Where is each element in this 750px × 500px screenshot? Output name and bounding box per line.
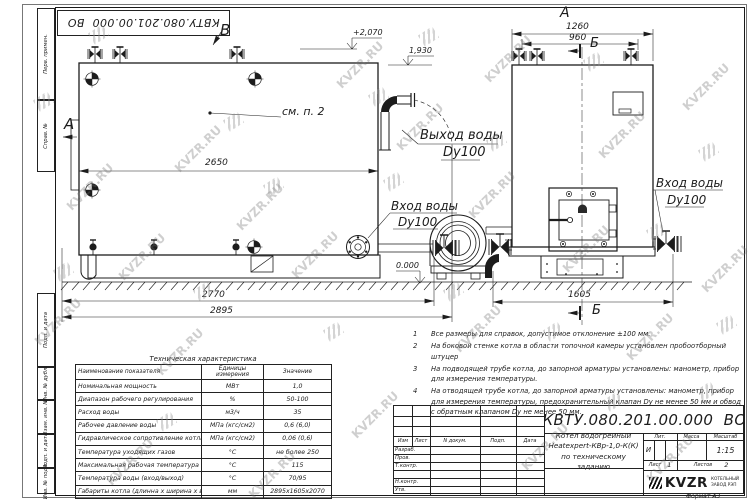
section-label-b-top: Б — [590, 37, 599, 50]
col-header: Наименование показателя — [76, 365, 202, 380]
table-row: Габариты котла (длинна х ширина х высота… — [76, 485, 332, 498]
boiler-front-view — [485, 47, 681, 325]
row-razrab: Разраб. — [395, 446, 430, 454]
dimension-1260: 1260 — [566, 23, 589, 32]
elevation-2070: +2,070 — [353, 29, 383, 37]
note-text: Все размеры для справок, допустимое откл… — [431, 329, 745, 340]
water-inlet-left-dy: Dy100 — [398, 216, 437, 228]
dimension-2650: 2650 — [205, 159, 228, 168]
row-blank — [395, 470, 430, 478]
see-note-label: см. п. 2 — [282, 106, 325, 117]
note-text: На боковой стенке котла в области топочн… — [431, 341, 745, 362]
furnace-door — [549, 188, 617, 251]
sheet-cell: Лист 1 — [643, 460, 677, 470]
mass-label: Масса — [677, 433, 706, 440]
col-izm: Изм — [394, 436, 412, 446]
boiler-side-view — [71, 47, 459, 279]
note-number: 3 — [413, 364, 431, 385]
water-inlet-right-dy: Dy100 — [667, 194, 706, 206]
dimension-2770: 2770 — [202, 291, 225, 300]
company-logo-icon — [649, 477, 662, 489]
row-utv: Утв. — [395, 486, 430, 494]
format-label: Формат А3 — [686, 494, 720, 500]
elevation-1930: 1,930 — [409, 47, 432, 55]
company-name: KVZR — [665, 475, 708, 491]
drawing-sheet: Перв. примен. Справ. № Подп. и дата Инв.… — [0, 0, 750, 500]
water-inlet-left-label: Вход воды — [391, 200, 458, 212]
table-row: Гидравлическое сопротивление котлаМПа (к… — [76, 432, 332, 445]
dimension-960: 960 — [569, 34, 586, 43]
elevation-0000: 0.000 — [396, 262, 419, 270]
col-dokum: N докум. — [430, 436, 480, 446]
col-header: Значение — [264, 365, 332, 380]
product-name: Котел водогрейный Heatexpert-КВр-1,0-К(К… — [544, 435, 643, 468]
view-label-b-top: B — [220, 23, 230, 38]
water-outlet-label: Выход воды — [420, 129, 503, 142]
row-prov: Пров. — [395, 454, 430, 462]
view-title-a: А — [560, 6, 570, 20]
company-cell: KVZR КОТЕЛЬНЫЙ ЗАВОД РЭП — [643, 470, 745, 495]
company-subtitle: КОТЕЛЬНЫЙ ЗАВОД РЭП — [711, 477, 739, 488]
tech-characteristics: Техническая характеристика Наименование … — [75, 355, 331, 499]
table-row: Диапазон рабочего регулирования%50-100 — [76, 393, 332, 406]
scale-value: 1:15 — [706, 440, 745, 460]
col-podp: Подп. — [480, 436, 516, 446]
table-row: Температура уходящих газов°Сне более 250 — [76, 445, 332, 458]
dimension-2895: 2895 — [210, 307, 233, 316]
ground-line — [61, 282, 692, 290]
title-block-number: КВТУ.080.201.00.000 ВО — [544, 406, 745, 433]
section-label-b-bottom: Б — [592, 304, 601, 317]
scale-label: Масштаб — [706, 433, 745, 440]
col-list: Лист — [412, 436, 430, 446]
tech-table: Наименование показателя Единицы измерени… — [75, 364, 332, 499]
water-inlet-right-label: Вход воды — [656, 177, 723, 189]
sheets-cell: Листов 2 — [677, 460, 745, 470]
tech-table-header-row: Наименование показателя Единицы измерени… — [76, 365, 332, 380]
row-tkontr: Т.контр. — [395, 462, 430, 470]
water-outlet-dy: Dy100 — [443, 146, 486, 159]
tech-table-title: Техническая характеристика — [75, 355, 331, 363]
lit-value: И — [643, 440, 654, 460]
lit-label: Лит. — [643, 433, 677, 440]
title-block: Изм Лист N докум. Подп. Дата Разраб. Про… — [393, 405, 744, 494]
table-row: Номинальная мощностьМВт1,0 — [76, 380, 332, 393]
note-number: 2 — [413, 341, 431, 362]
row-nkontr: Н.контр. — [395, 478, 430, 486]
dimension-1605: 1605 — [568, 291, 591, 300]
table-row: Температура воды (вход/выход)°С70/95 — [76, 472, 332, 485]
col-data: Дата — [516, 436, 544, 446]
note-item: 2На боковой стенке котла в области топоч… — [413, 341, 745, 362]
note-item: 1Все размеры для справок, допустимое отк… — [413, 329, 745, 340]
note-item: 3На подводящей трубе котла, до запорной … — [413, 364, 745, 385]
table-row: Рабочее давление водыМПа (кгс/см2)0,6 (6… — [76, 419, 332, 432]
table-row: Расход водым3/ч35 — [76, 406, 332, 419]
table-row: Максимальная рабочая температура воды°С1… — [76, 459, 332, 472]
note-number: 1 — [413, 329, 431, 340]
col-header: Единицы измерения — [202, 365, 264, 380]
note-text: На подводящей трубе котла, до запорной а… — [431, 364, 745, 385]
view-label-a-side: А — [64, 117, 74, 132]
